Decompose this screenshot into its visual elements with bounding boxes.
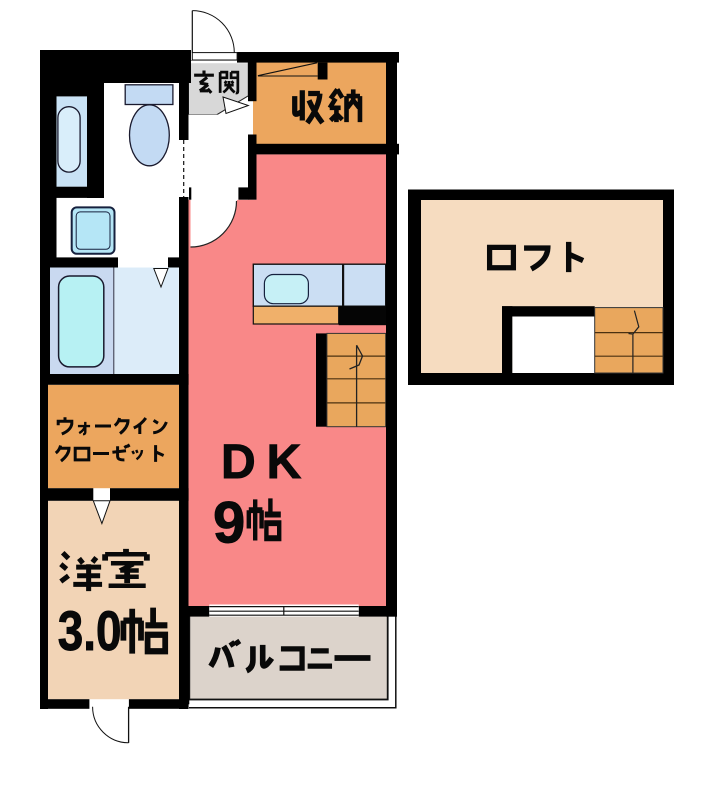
svg-text:DK: DK	[221, 436, 312, 489]
svg-text:9: 9	[213, 491, 245, 556]
svg-text:3.0: 3.0	[58, 599, 122, 661]
